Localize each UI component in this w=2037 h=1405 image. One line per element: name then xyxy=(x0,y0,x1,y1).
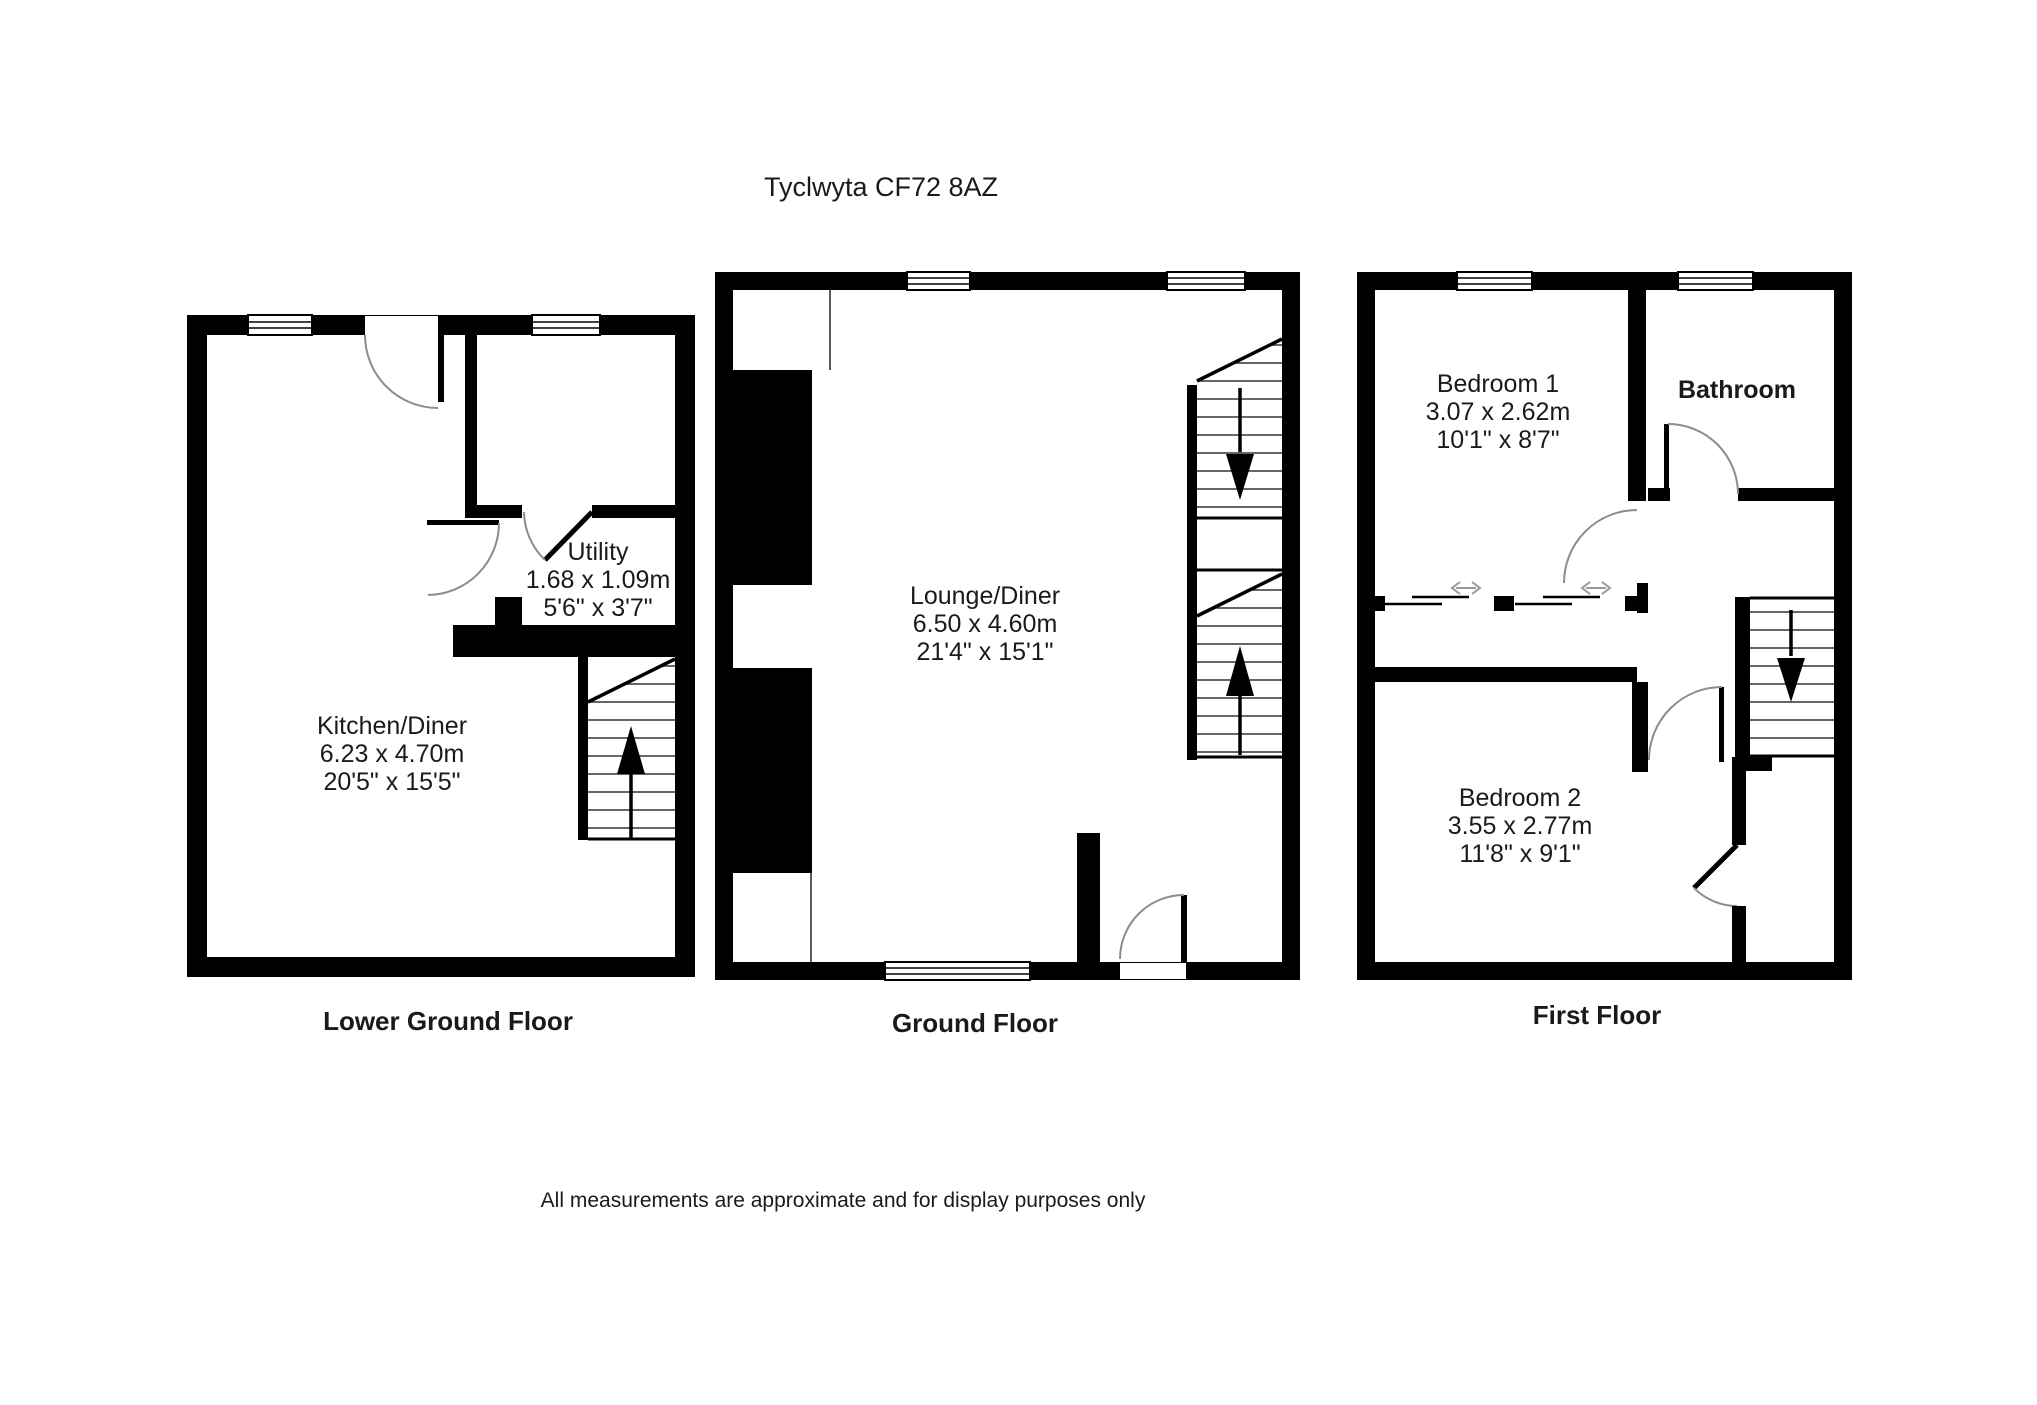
door-leaf xyxy=(1181,895,1187,962)
wall-segment xyxy=(187,315,207,977)
chimney-block xyxy=(733,668,812,873)
room-dim-imperial: 10'1" x 8'7" xyxy=(1436,426,1559,454)
page-title: Tyclwyta CF72 8AZ xyxy=(764,172,998,202)
wall-segment xyxy=(1637,583,1648,613)
wall-segment xyxy=(1735,597,1750,757)
wall-segment xyxy=(465,505,522,518)
room-label-bedroom-1: Bedroom 1 xyxy=(1437,370,1559,398)
room-dim-imperial: 21'4" x 15'1" xyxy=(916,638,1053,666)
chimney-block xyxy=(733,370,812,585)
room-dim-imperial: 11'8" x 9'1" xyxy=(1459,840,1580,868)
room-dim-metric: 6.50 x 4.60m xyxy=(913,610,1058,638)
wall-segment xyxy=(1357,272,1375,980)
window-icon xyxy=(1167,272,1245,290)
stairs-up-arrow-icon xyxy=(1226,646,1254,696)
wall-segment xyxy=(1732,757,1772,771)
wall-segment xyxy=(187,957,695,977)
floorplan-page: Tyclwyta CF72 8AZ xyxy=(0,0,2037,1405)
room-dim-metric: 6.23 x 4.70m xyxy=(320,740,465,768)
room-label-utility: Utility xyxy=(567,538,629,566)
wall-segment xyxy=(1357,272,1852,290)
floor-caption-lower-ground: Lower Ground Floor xyxy=(323,1006,573,1036)
door-swing-arc-icon xyxy=(1694,888,1737,906)
room-label-bedroom-2: Bedroom 2 xyxy=(1459,784,1581,812)
wall-segment xyxy=(1282,272,1300,980)
wall-segment xyxy=(1632,682,1648,772)
room-label-kitchen-diner: Kitchen/Diner xyxy=(317,712,467,740)
room-label-bathroom: Bathroom xyxy=(1678,376,1796,404)
wall-segment xyxy=(495,597,522,625)
stairs-down-arrow-icon xyxy=(1777,658,1805,702)
slide-arrow-icon xyxy=(1452,582,1480,594)
stair-break-mask xyxy=(1197,330,1282,379)
door-swing-arc-icon xyxy=(1564,510,1637,583)
door-leaf xyxy=(427,520,499,525)
sliding-door-wall xyxy=(1372,582,1638,611)
staircase xyxy=(1750,598,1834,756)
floorplan-drawing: Tyclwyta CF72 8AZ xyxy=(0,0,2037,1405)
wall-segment xyxy=(715,272,733,980)
wall-segment xyxy=(1187,385,1197,760)
window-icon xyxy=(248,315,312,335)
staircase xyxy=(588,657,675,839)
floor-plan-first: Bedroom 1 3.07 x 2.62m 10'1" x 8'7" Bath… xyxy=(1357,272,1852,1030)
door-leaf xyxy=(1694,845,1737,888)
door-leaf xyxy=(1664,424,1669,490)
wall-segment xyxy=(453,625,680,657)
floor-plan-ground: Lounge/Diner 6.50 x 4.60m 21'4" x 15'1" … xyxy=(715,272,1300,1038)
wall-segment xyxy=(592,505,680,518)
wall-segment xyxy=(1357,962,1852,980)
floor-caption-first: First Floor xyxy=(1533,1000,1662,1030)
window-icon xyxy=(885,962,1030,980)
wall-segment xyxy=(1732,771,1746,845)
door-opening xyxy=(365,316,438,335)
door-swing-arc-icon xyxy=(1649,687,1722,760)
room-dim-metric: 3.07 x 2.62m xyxy=(1426,398,1571,426)
room-dim-metric: 3.55 x 2.77m xyxy=(1448,812,1593,840)
slide-arrow-icon xyxy=(1582,582,1610,594)
door-swing-arc-icon xyxy=(365,335,438,408)
disclaimer-text: All measurements are approximate and for… xyxy=(541,1189,1146,1212)
door-swing-arc-icon xyxy=(1120,895,1184,959)
door-leaf xyxy=(1719,687,1724,762)
wall-segment xyxy=(1732,906,1746,962)
staircase xyxy=(1197,330,1282,757)
window-icon xyxy=(1678,272,1753,290)
door-leaf xyxy=(438,315,444,402)
door-swing-arc-icon xyxy=(1668,424,1738,494)
room-dim-imperial: 20'5" x 15'5" xyxy=(323,768,460,796)
wall-segment xyxy=(1738,488,1838,501)
floor-caption-ground: Ground Floor xyxy=(892,1008,1058,1038)
wall-segment xyxy=(578,657,588,840)
wall-segment xyxy=(1357,667,1637,682)
stair-break-mask xyxy=(588,657,675,700)
wall-segment xyxy=(1077,833,1100,963)
window-icon xyxy=(532,315,600,335)
stairs-down-arrow-icon xyxy=(1226,454,1254,500)
room-dim-metric: 1.68 x 1.09m xyxy=(526,566,671,594)
door-opening xyxy=(1120,963,1186,979)
window-icon xyxy=(1457,272,1532,290)
wall-segment xyxy=(465,315,477,507)
wall-segment xyxy=(1628,272,1646,501)
wall-segment xyxy=(1834,272,1852,980)
floor-plan-lower-ground: Kitchen/Diner 6.23 x 4.70m 20'5" x 15'5"… xyxy=(187,315,695,1036)
door-swing-arc-icon xyxy=(524,512,545,560)
room-label-lounge-diner: Lounge/Diner xyxy=(910,582,1060,610)
window-icon xyxy=(907,272,970,290)
door-swing-arc-icon xyxy=(428,523,499,595)
stairs-up-arrow-icon xyxy=(617,726,645,774)
room-dim-imperial: 5'6" x 3'7" xyxy=(543,594,652,622)
